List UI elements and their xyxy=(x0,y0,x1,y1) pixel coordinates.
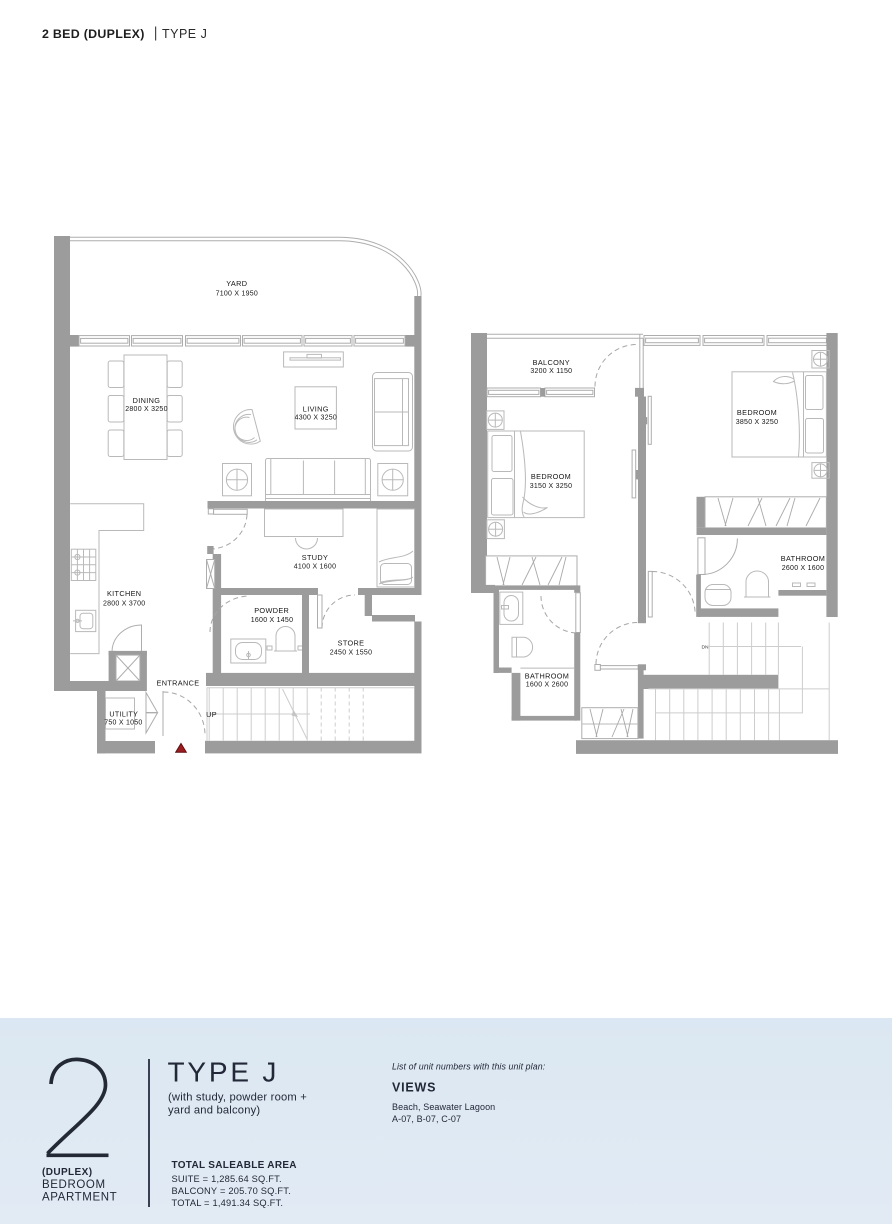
svg-text:LIVING: LIVING xyxy=(303,405,329,414)
svg-text:2600 X 1600: 2600 X 1600 xyxy=(782,565,824,572)
svg-text:3200 X 1150: 3200 X 1150 xyxy=(530,368,572,375)
svg-text:2800 X 3700: 2800 X 3700 xyxy=(103,601,145,608)
svg-text:YARD: YARD xyxy=(226,279,247,288)
svg-text:2450 X 1550: 2450 X 1550 xyxy=(330,650,372,657)
svg-text:POWDER: POWDER xyxy=(254,606,289,615)
svg-text:BALCONY = 205.70 SQ.FT.: BALCONY = 205.70 SQ.FT. xyxy=(172,1186,291,1196)
svg-text:SUITE = 1,285.64 SQ.FT.: SUITE = 1,285.64 SQ.FT. xyxy=(172,1174,282,1184)
svg-text:DINING: DINING xyxy=(133,396,161,405)
svg-text:BEDROOM: BEDROOM xyxy=(42,1179,106,1191)
svg-text:ENTRANCE: ENTRANCE xyxy=(157,679,200,688)
svg-text:UTILITY: UTILITY xyxy=(109,711,138,719)
svg-text:KITCHEN: KITCHEN xyxy=(107,589,141,598)
svg-text:3150 X 3250: 3150 X 3250 xyxy=(530,483,572,490)
svg-text:1600 X 2600: 1600 X 2600 xyxy=(526,682,568,689)
svg-text:(with study, powder room +: (with study, powder room + xyxy=(168,1092,307,1104)
svg-text:BATHROOM: BATHROOM xyxy=(525,672,569,681)
svg-text:4100 X 1600: 4100 X 1600 xyxy=(294,563,336,570)
svg-text:yard and balcony): yard and balcony) xyxy=(168,1105,260,1117)
svg-text:VIEWS: VIEWS xyxy=(392,1081,436,1095)
svg-text:TYPE J: TYPE J xyxy=(162,27,207,41)
svg-text:BEDROOM: BEDROOM xyxy=(737,408,777,417)
svg-text:APARTMENT: APARTMENT xyxy=(42,1192,117,1204)
svg-text:A-07, B-07, C-07: A-07, B-07, C-07 xyxy=(392,1114,461,1124)
svg-text:3850 X 3250: 3850 X 3250 xyxy=(736,419,778,426)
svg-text:Beach, Seawater Lagoon: Beach, Seawater Lagoon xyxy=(392,1102,495,1112)
svg-text:TYPE J: TYPE J xyxy=(168,1057,280,1088)
svg-text:2800 X 3250: 2800 X 3250 xyxy=(125,406,167,413)
svg-text:1600 X 1450: 1600 X 1450 xyxy=(251,617,293,624)
svg-text:750 X 1050: 750 X 1050 xyxy=(104,720,142,727)
svg-text:TOTAL = 1,491.34 SQ.FT.: TOTAL = 1,491.34 SQ.FT. xyxy=(172,1198,284,1208)
svg-text:List of unit numbers with this: List of unit numbers with this unit plan… xyxy=(392,1062,546,1072)
svg-text:BATHROOM: BATHROOM xyxy=(781,554,825,563)
svg-text:(DUPLEX): (DUPLEX) xyxy=(42,1167,92,1178)
svg-text:2 BED (DUPLEX): 2 BED (DUPLEX) xyxy=(42,27,145,41)
svg-text:4300 X 3250: 4300 X 3250 xyxy=(295,414,337,421)
svg-text:UP: UP xyxy=(206,710,217,719)
svg-text:BALCONY: BALCONY xyxy=(533,358,570,367)
svg-text:BEDROOM: BEDROOM xyxy=(531,472,571,481)
svg-text:7100 X 1950: 7100 X 1950 xyxy=(216,291,258,298)
svg-text:STUDY: STUDY xyxy=(302,553,328,562)
svg-text:STORE: STORE xyxy=(338,639,365,648)
svg-text:DN: DN xyxy=(702,645,710,651)
svg-text:TOTAL SALEABLE AREA: TOTAL SALEABLE AREA xyxy=(172,1160,297,1171)
